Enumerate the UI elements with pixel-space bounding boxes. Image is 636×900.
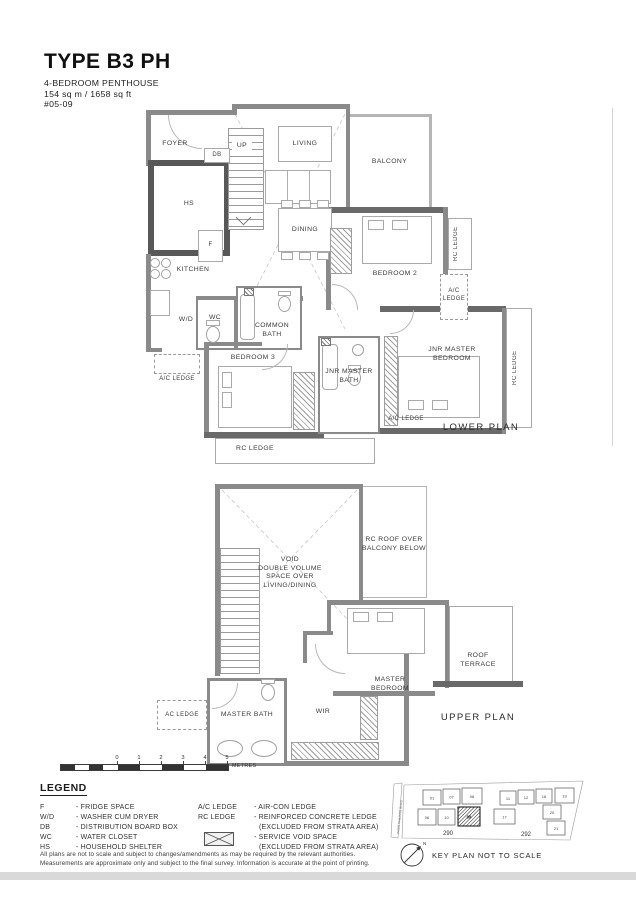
fridge-space: F	[198, 230, 223, 262]
north-arrow	[404, 847, 420, 863]
unit-number: 01	[430, 796, 435, 801]
unit-number: 06	[425, 815, 430, 820]
scale-segment	[184, 765, 206, 770]
service-void	[244, 288, 254, 296]
header: TYPE B3 PH 4-BEDROOM PENTHOUSE 154 sq m …	[44, 50, 171, 110]
unit-area: 154 sq m / 1658 sq ft	[44, 89, 171, 100]
scale-unit-label: METRES	[232, 763, 256, 769]
room-label-common-bath: COMMON BATH	[246, 322, 298, 339]
wardrobe	[360, 696, 378, 740]
room-label-wir: WIR	[305, 708, 341, 717]
ac-ledge-label: AC LEDGE	[157, 712, 207, 720]
page-bottom-strip	[0, 872, 636, 880]
legend-abbr: W/D	[40, 814, 54, 821]
unit-number: 21	[554, 826, 559, 831]
legend-desc: - HOUSEHOLD SHELTER	[76, 844, 162, 851]
wall	[433, 681, 523, 687]
dining-chair	[317, 200, 329, 208]
rc-ledge-label: RC LEDGE	[453, 222, 467, 266]
legend-desc: - AIR-CON LEDGE	[254, 804, 316, 811]
unit-number: 11	[506, 796, 511, 801]
scale-bar: 0 1 2 3 4 5 METRES	[40, 755, 260, 775]
room-label-kitchen: KITCHEN	[172, 266, 214, 275]
room-label-balcony: BALCONY	[350, 158, 429, 167]
toilet	[206, 326, 220, 343]
key-plan-caption: KEY PLAN NOT TO SCALE	[432, 851, 542, 860]
rc-roof-label: RC ROOF OVER BALCONY BELOW	[349, 536, 439, 553]
legend-abbr: WC	[40, 834, 52, 841]
scale-segment	[206, 765, 228, 770]
wall	[287, 761, 409, 766]
hob-burner	[161, 269, 171, 279]
wall	[327, 600, 449, 605]
unit-number: 18	[542, 794, 547, 799]
unit-type-subtitle: 4-BEDROOM PENTHOUSE	[44, 78, 171, 89]
block-label: 290	[443, 831, 454, 837]
roof-terrace-area	[449, 606, 513, 682]
scale-bar-strip	[60, 764, 229, 771]
room-label-bedroom2: BEDROOM 2	[350, 270, 440, 279]
wardrobe	[384, 336, 398, 426]
scale-segment	[89, 765, 103, 770]
room-label-roof-terrace: ROOF TERRACE	[443, 652, 513, 669]
legend-desc: - DISTRIBUTION BOARD BOX	[76, 824, 178, 831]
hob-burner	[150, 258, 160, 268]
unit-number: 07	[449, 795, 454, 800]
room-label-hs: HS	[148, 200, 230, 209]
wardrobe	[330, 228, 352, 274]
pillow	[222, 372, 232, 388]
legend-desc: - WASHER CUM DRYER	[76, 814, 159, 821]
legend-desc: - FRIDGE SPACE	[76, 804, 135, 811]
wall	[146, 348, 162, 352]
legend-desc: - WATER CLOSET	[76, 834, 138, 841]
toilet	[278, 296, 291, 312]
wall	[303, 631, 307, 663]
legend-desc: - REINFORCED CONCRETE LEDGE	[254, 814, 377, 821]
wall	[215, 484, 363, 489]
legend-abbr: HS	[40, 844, 50, 851]
floor-plan-page: TYPE B3 PH 4-BEDROOM PENTHOUSE 154 sq m …	[0, 0, 636, 900]
lower-plan-caption: LOWER PLAN	[416, 422, 546, 433]
unit-number: 17	[502, 815, 507, 820]
legend-desc: (EXCLUDED FROM STRATA AREA)	[259, 844, 379, 851]
block-label: 292	[521, 832, 532, 838]
scale-segment	[61, 765, 75, 770]
wall	[326, 207, 448, 213]
room-label-dining: DINING	[278, 226, 332, 235]
room-label-master-bath: MASTER BATH	[211, 711, 283, 720]
db-box: DB	[204, 148, 230, 163]
scale-segment	[140, 765, 162, 770]
legend-abbr: RC LEDGE	[198, 814, 235, 821]
wardrobe	[293, 372, 315, 430]
page-title: TYPE B3 PH	[44, 50, 171, 74]
ac-ledge-label: A/C LEDGE	[148, 376, 206, 384]
rc-ledge-label: RC LEDGE	[512, 318, 526, 418]
basin	[352, 344, 364, 356]
service-void-symbol	[204, 832, 234, 846]
rc-roof-edge	[363, 597, 427, 598]
north-label: N	[423, 841, 426, 846]
rc-ledge-label: RC LEDGE	[200, 445, 310, 454]
pillow	[222, 392, 232, 408]
hob-burner	[150, 269, 160, 279]
living-room-table: LIVING	[278, 126, 332, 162]
wall	[404, 646, 409, 766]
sofa-divider	[309, 171, 310, 203]
legend: LEGEND F - FRIDGE SPACE W/D - WASHER CUM…	[40, 782, 440, 858]
room-label-jnr-master-bedroom: JNR MASTER BEDROOM	[407, 346, 497, 363]
pillow	[377, 612, 393, 622]
unit-number-highlighted: 09	[467, 815, 472, 820]
legend-title: LEGEND	[40, 782, 87, 796]
room-label-foyer: FOYER	[152, 140, 198, 149]
dining-chair	[281, 252, 293, 260]
room-label-master-bedroom: MASTER BEDROOM	[345, 676, 435, 693]
pillow	[408, 400, 424, 410]
unit-number: 19	[562, 794, 567, 799]
balcony-wall	[429, 114, 432, 212]
ac-ledge-box	[154, 354, 200, 374]
toilet	[261, 684, 275, 701]
kitchen-sink	[150, 290, 170, 316]
sofa-divider	[287, 171, 288, 203]
room-label-jnr-master-bath: JNR MASTER BATH	[322, 368, 376, 385]
hob-burner	[161, 258, 171, 268]
wd-label: W/D	[168, 316, 204, 325]
rc-roof-edge	[363, 486, 427, 487]
room-label-bedroom3: BEDROOM 3	[208, 354, 298, 363]
unit-number: 12	[524, 795, 529, 800]
pillow	[392, 220, 408, 230]
legend-abbr: DB	[40, 824, 50, 831]
disclaimer-line: All plans are not to scale and subject t…	[40, 851, 355, 858]
dining-chair	[299, 252, 311, 260]
legend-desc: (EXCLUDED FROM STRATA AREA)	[259, 824, 379, 831]
pillow	[432, 400, 448, 410]
unit-number: 10	[444, 815, 449, 820]
dining-chair	[281, 200, 293, 208]
dining-chair	[299, 200, 311, 208]
plan-edge-line	[612, 108, 613, 446]
pillow	[368, 220, 384, 230]
scale-segment	[162, 765, 184, 770]
key-plan: PASIR PANJANG ROAD 01 07 08 06 10 09 290…	[390, 778, 610, 878]
wall	[146, 110, 151, 166]
balcony-wall	[350, 114, 432, 117]
disclaimer-line: Measurements are approximate only and su…	[40, 860, 370, 867]
sofa	[265, 170, 331, 204]
legend-abbr: A/C LEDGE	[198, 804, 237, 811]
wall	[327, 600, 331, 635]
void-label: VOID DOUBLE VOLUME SPACE OVER LIVING/DIN…	[230, 556, 350, 590]
floor-plan-lower: DB F LIVING	[140, 104, 542, 472]
stair-up-label: UP	[232, 142, 252, 151]
upper-plan-caption: UPPER PLAN	[413, 712, 543, 723]
pillow	[353, 612, 369, 622]
scale-segment	[103, 765, 118, 770]
unit-number: 20	[550, 810, 555, 815]
scale-segment	[75, 765, 89, 770]
floor-plan-upper: VOID DOUBLE VOLUME SPACE OVER LIVING/DIN…	[155, 478, 527, 774]
service-void	[321, 338, 331, 346]
ac-ledge-label: A/C LEDGE	[440, 288, 468, 303]
wall	[237, 104, 350, 109]
legend-abbr: F	[40, 804, 44, 811]
dining-chair	[317, 252, 329, 260]
unit-number: 08	[470, 794, 475, 799]
scale-segment	[118, 765, 140, 770]
wardrobe	[291, 742, 379, 760]
legend-desc: - SERVICE VOID SPACE	[254, 834, 337, 841]
